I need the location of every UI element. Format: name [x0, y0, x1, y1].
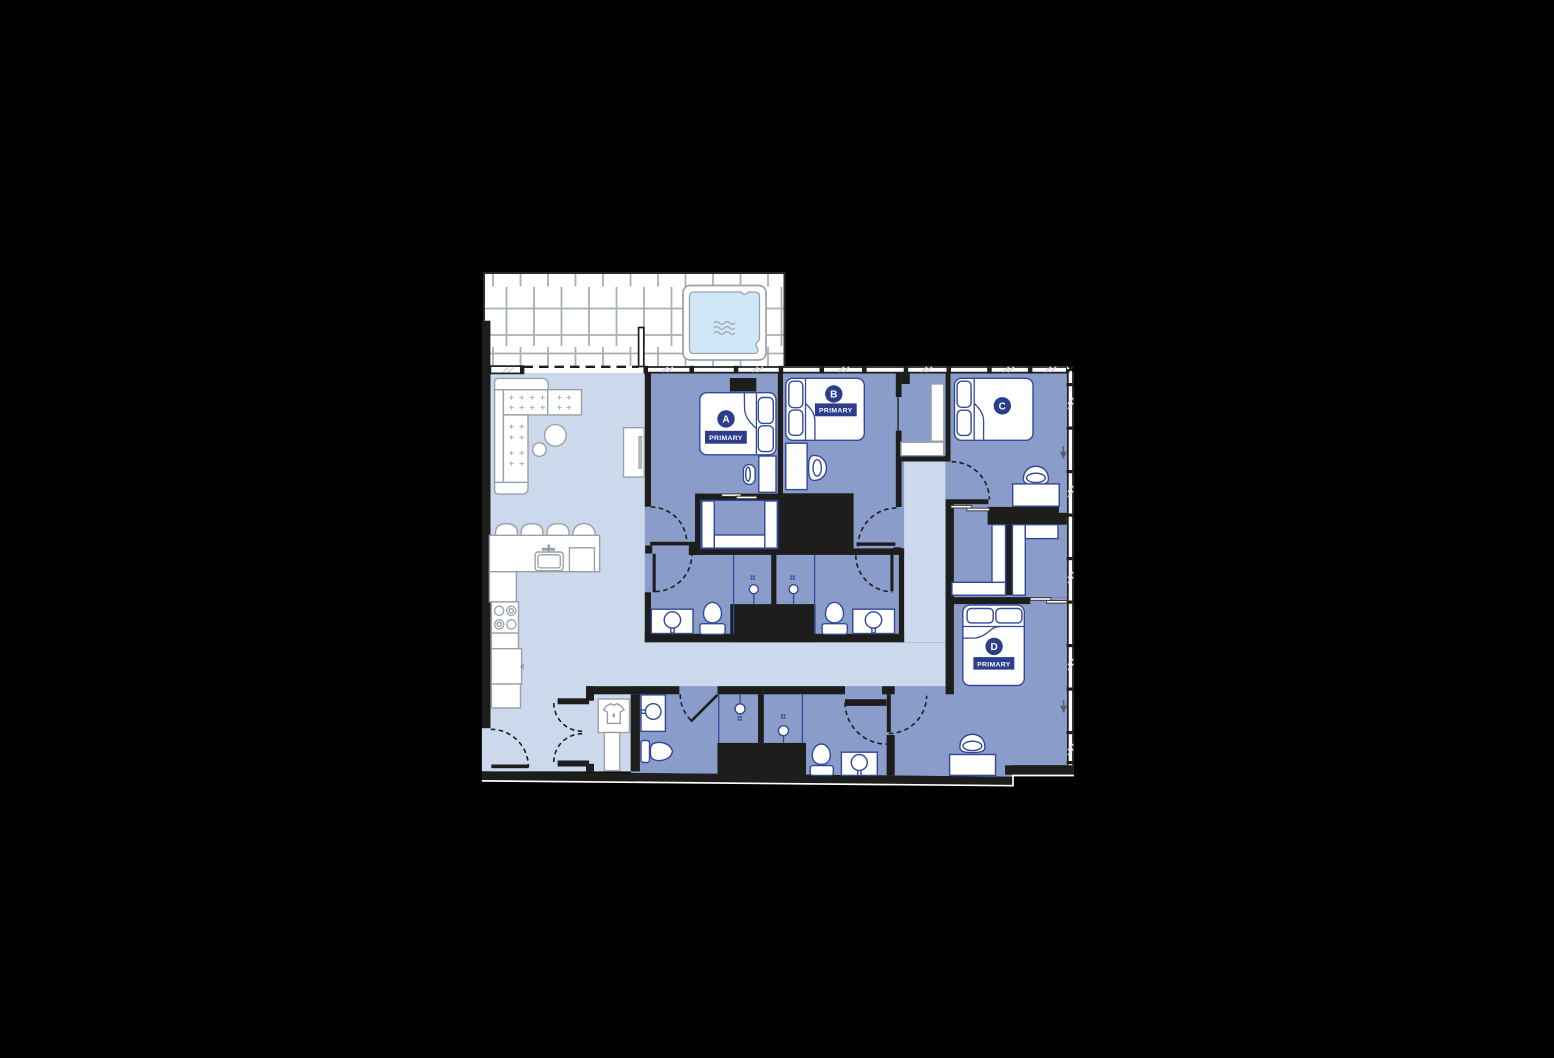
svg-text:D: D: [990, 642, 997, 653]
svg-text:PRIMARY: PRIMARY: [709, 435, 743, 442]
svg-text:PRIMARY: PRIMARY: [819, 408, 853, 415]
svg-text:B: B: [830, 390, 837, 401]
svg-text:PRIMARY: PRIMARY: [977, 661, 1011, 668]
svg-text:C: C: [999, 402, 1006, 413]
svg-text:A: A: [722, 415, 729, 426]
